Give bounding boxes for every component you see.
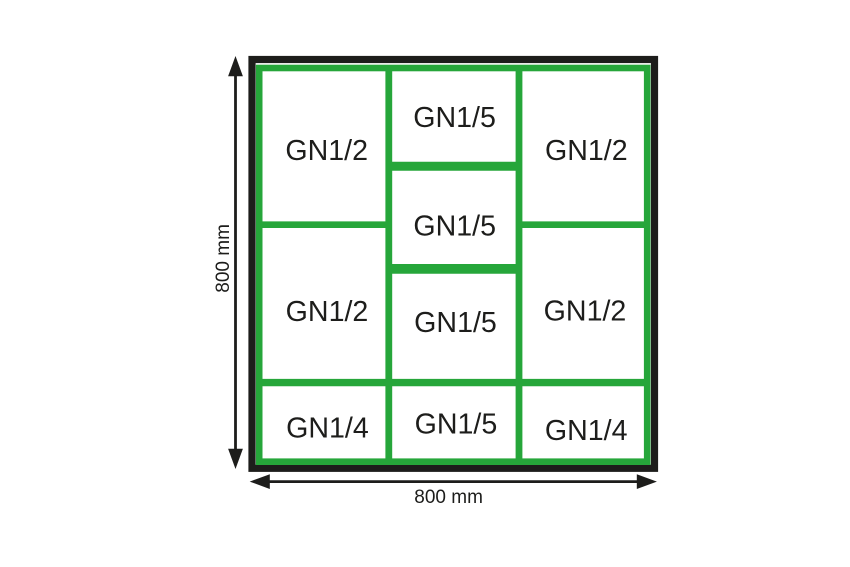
svg-text:GN1/5: GN1/5 <box>413 211 496 243</box>
svg-text:GN1/4: GN1/4 <box>545 415 628 447</box>
svg-text:800 mm: 800 mm <box>414 487 483 508</box>
svg-text:GN1/4: GN1/4 <box>286 412 369 444</box>
svg-text:GN1/2: GN1/2 <box>286 296 369 328</box>
svg-text:GN1/5: GN1/5 <box>415 409 498 441</box>
svg-text:800 mm: 800 mm <box>213 224 234 293</box>
svg-text:GN1/2: GN1/2 <box>285 135 368 167</box>
svg-text:GN1/2: GN1/2 <box>544 296 627 328</box>
svg-text:GN1/5: GN1/5 <box>413 102 496 134</box>
svg-text:GN1/5: GN1/5 <box>414 307 497 339</box>
svg-text:GN1/2: GN1/2 <box>545 135 628 167</box>
